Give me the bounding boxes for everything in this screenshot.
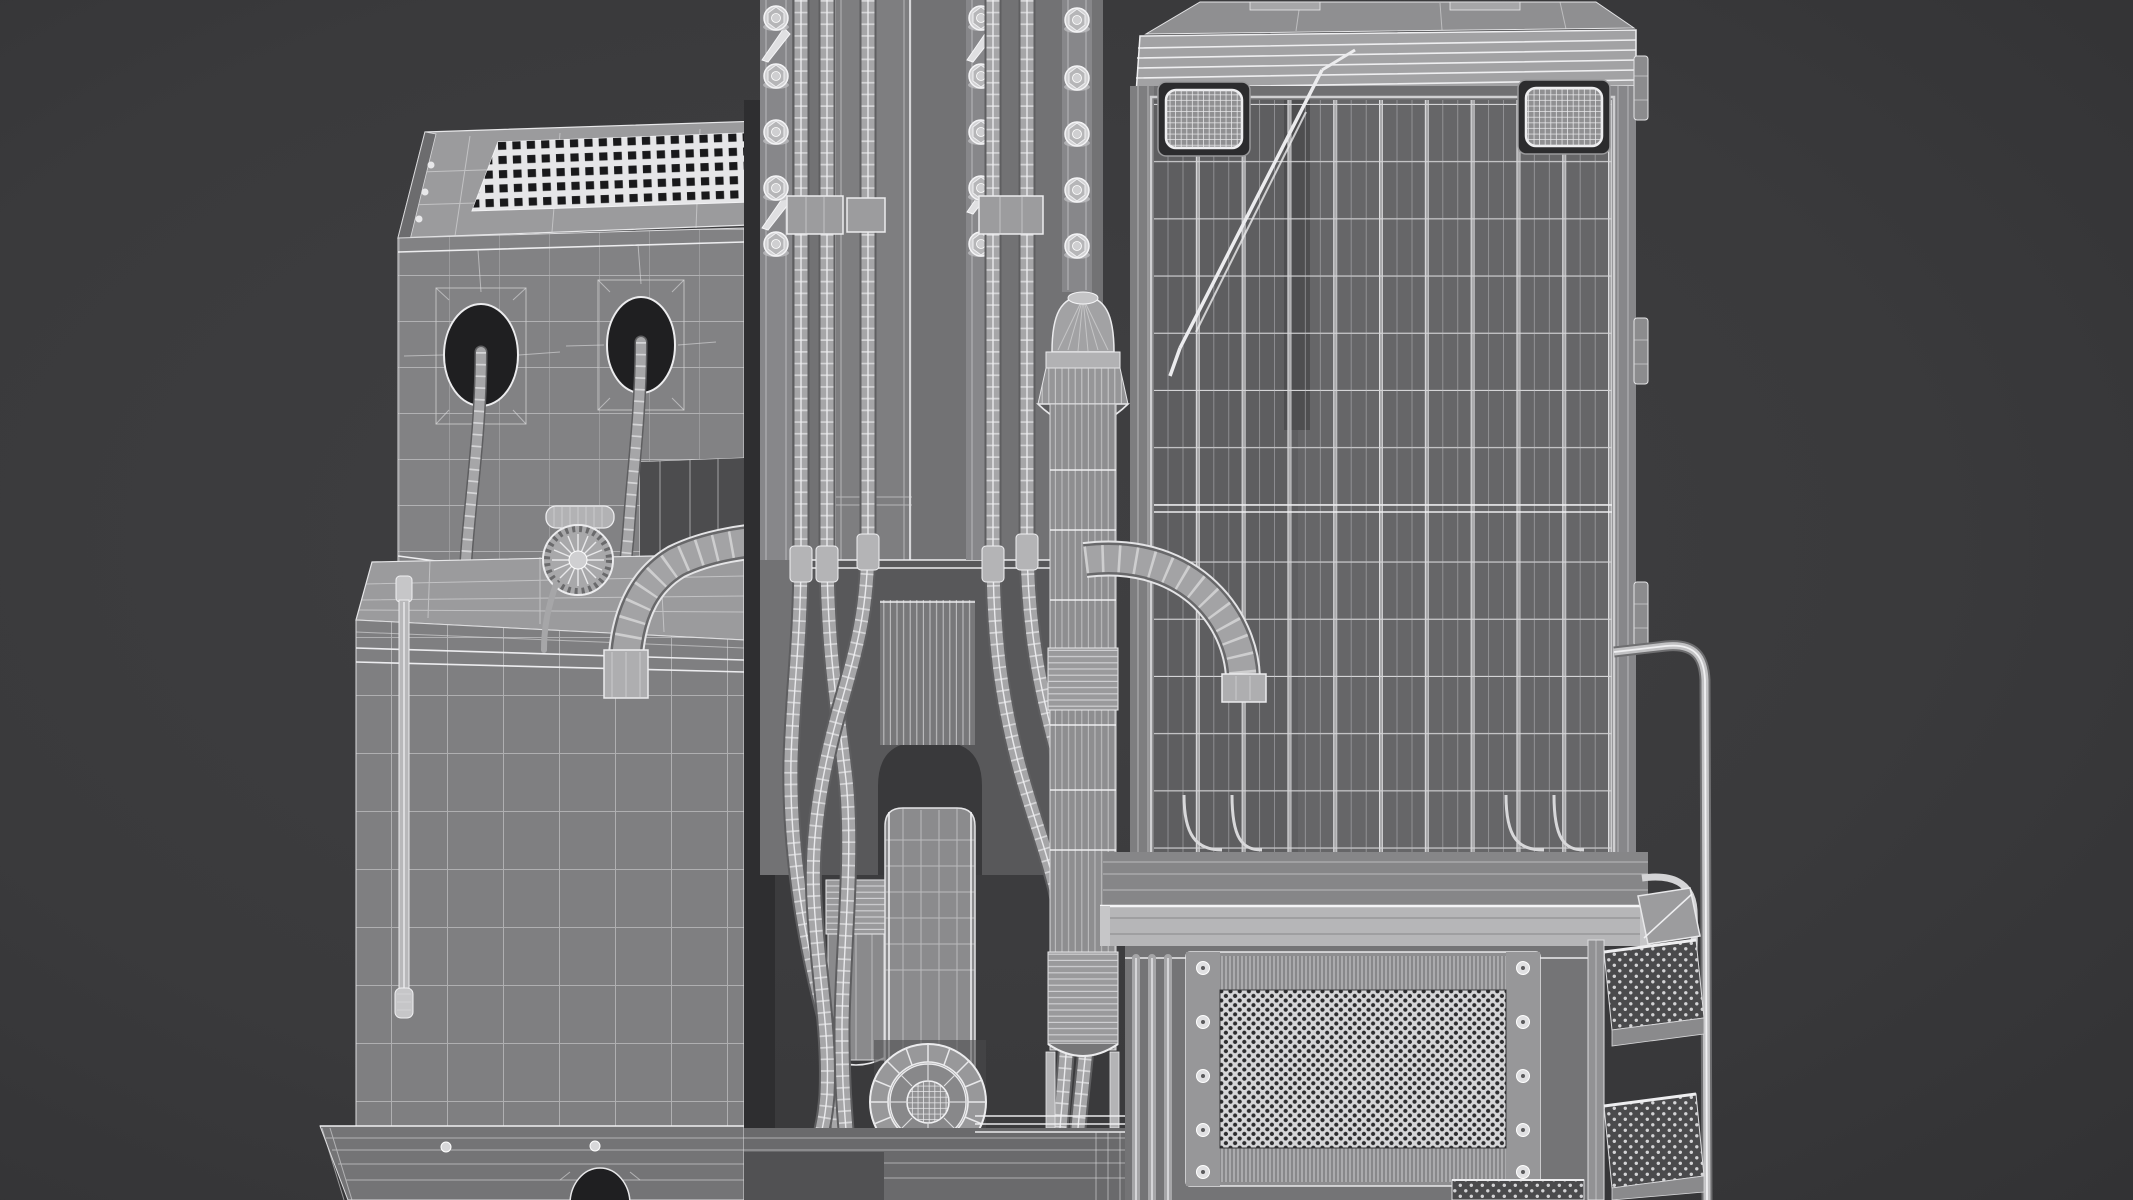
radiator-bay	[1125, 946, 1604, 1200]
step-upper	[1604, 940, 1704, 1046]
radiator-panel	[1186, 952, 1540, 1186]
headlight-left	[1158, 82, 1250, 156]
walkway-ledge	[1100, 852, 1650, 946]
step-lower	[1604, 1094, 1704, 1200]
mast-flange-right	[1062, 0, 1092, 292]
cage-mesh	[1154, 100, 1612, 852]
bottom-step	[1452, 1180, 1584, 1200]
chain-curtain	[880, 600, 975, 745]
mast-flange-left	[760, 0, 792, 560]
wireframe-render: Grayscale 3D wireframe render of a crawl…	[0, 0, 2133, 1200]
tank-skirt	[320, 1126, 744, 1200]
render-viewport: Grayscale 3D wireframe render of a crawl…	[0, 0, 2133, 1200]
headlight-right	[1518, 80, 1610, 154]
hydraulic-tank	[320, 554, 744, 1200]
power-cabinet	[1130, 2, 1648, 874]
main-cylinder	[1038, 292, 1128, 1128]
